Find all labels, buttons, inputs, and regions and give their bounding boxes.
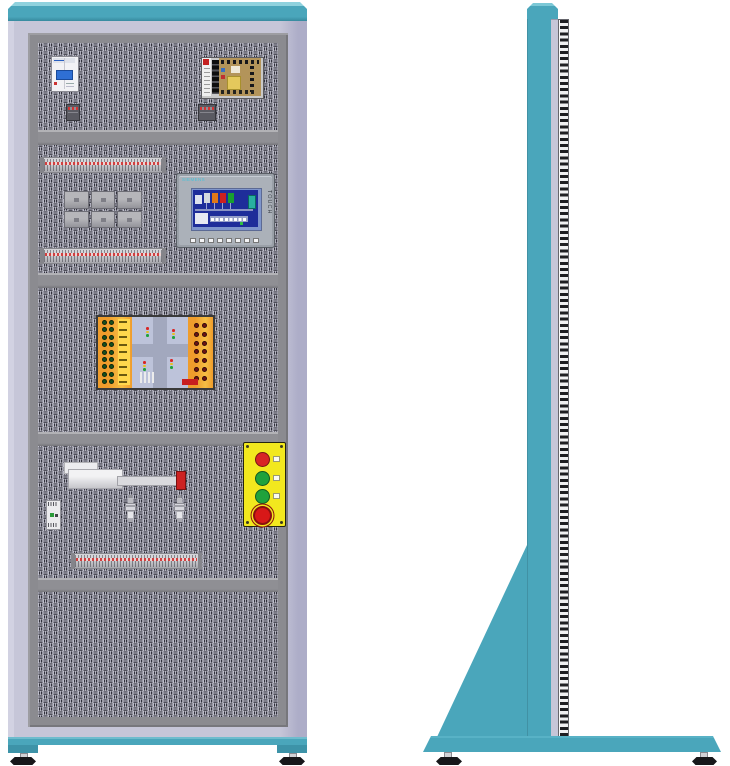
relay-block — [64, 191, 89, 209]
emergency-stop-button — [253, 506, 272, 525]
psu-pcb — [219, 58, 261, 96]
hmi-touch-panel: SIEMENS TOUCH — [176, 173, 275, 248]
traffic-light-lamp — [170, 363, 173, 366]
button-label-tag — [273, 493, 280, 499]
panel-divider — [38, 130, 278, 145]
banana-socket — [202, 376, 207, 381]
banana-socket — [109, 379, 114, 384]
psu-capacitor-column — [250, 66, 254, 92]
illustration-canvas: SIEMENS TOUCH — [0, 0, 730, 766]
banana-socket — [109, 350, 114, 355]
banana-socket — [102, 335, 107, 340]
hmi-brand-text: SIEMENS — [182, 177, 205, 182]
screen-dot-green — [240, 222, 243, 225]
module-chip — [55, 514, 58, 517]
label-dash — [119, 329, 127, 331]
screen-pipe — [195, 209, 253, 211]
banana-socket — [109, 320, 114, 325]
cabinet-plinth — [8, 737, 307, 745]
right-socket-grid — [193, 323, 208, 381]
power-supply — [201, 57, 264, 99]
relay-block — [64, 211, 89, 229]
side-perforation-stripes — [558, 19, 569, 737]
label-dash — [119, 359, 127, 361]
psu-transformer — [227, 76, 241, 90]
traffic-light-lamp — [143, 365, 146, 368]
board-road-horizontal — [132, 344, 188, 357]
screen-indicator-bar — [228, 193, 234, 203]
label-dash — [119, 344, 127, 346]
breaker-text-dash — [66, 83, 74, 84]
hmi-function-key — [199, 238, 205, 243]
relay-block — [91, 211, 116, 229]
traffic-light — [143, 361, 146, 371]
label-dash — [119, 321, 127, 323]
banana-socket — [202, 367, 207, 372]
screen-tank — [248, 195, 256, 209]
label-dash — [119, 336, 127, 338]
side-base-plate — [423, 736, 721, 752]
psu-white-label — [231, 66, 240, 73]
traffic-light — [170, 359, 173, 369]
hmi-function-key — [217, 238, 223, 243]
traffic-light-lamp — [172, 336, 175, 339]
cabinet-top-cap — [8, 2, 307, 21]
breaker-text-dash — [66, 86, 74, 87]
banana-socket — [102, 379, 107, 384]
hmi-side-text: TOUCH — [266, 190, 272, 214]
side-panel-edge — [551, 19, 558, 738]
hmi-function-key — [244, 238, 250, 243]
leveling-foot — [10, 757, 36, 765]
banana-socket — [102, 364, 107, 369]
sensor — [125, 495, 136, 522]
banana-socket — [109, 335, 114, 340]
leveling-foot — [692, 757, 717, 765]
cabinet-side-view — [400, 0, 730, 766]
relay-group — [64, 191, 142, 228]
label-dash — [119, 381, 127, 383]
traffic-light — [172, 329, 175, 339]
banana-socket — [194, 341, 199, 346]
relay-block — [91, 191, 116, 209]
banana-socket — [202, 349, 207, 354]
traffic-trainer-board — [96, 315, 215, 390]
banana-socket — [202, 341, 207, 346]
panel-divider — [38, 578, 278, 592]
traffic-light-lamp — [170, 359, 173, 362]
module-led — [50, 513, 54, 517]
conveyor-cells — [211, 218, 247, 221]
traffic-light-lamp — [146, 331, 149, 334]
terminal-connector-block — [66, 104, 80, 121]
traffic-light-lamp — [146, 334, 149, 337]
button-label-tag — [273, 475, 280, 481]
push-button — [255, 489, 270, 504]
screen-indicator-bar — [204, 193, 210, 203]
hmi-function-key — [190, 238, 196, 243]
screen-indicator-bar — [220, 193, 226, 203]
banana-socket — [194, 332, 199, 337]
traffic-light-lamp — [170, 366, 173, 369]
terminal-rail — [40, 248, 166, 264]
traffic-light-lamp — [172, 329, 175, 332]
banana-socket — [194, 349, 199, 354]
left-socket-grid — [101, 320, 115, 384]
traffic-light-lamp — [172, 333, 175, 336]
banana-socket — [194, 367, 199, 372]
relay-module — [46, 500, 61, 530]
leveling-foot — [436, 757, 462, 765]
banana-socket — [194, 323, 199, 328]
sensor — [174, 495, 185, 522]
hmi-screen — [193, 190, 258, 227]
board-red-label — [182, 379, 198, 385]
psu-terminal-column — [212, 60, 219, 94]
push-button — [255, 452, 270, 467]
banana-socket — [109, 372, 114, 377]
linear-actuator-body — [68, 469, 123, 489]
banana-socket — [202, 332, 207, 337]
plinth-block — [8, 745, 38, 753]
screen-indicator-bar — [212, 193, 218, 203]
terminal-rail — [40, 157, 166, 173]
breaker-flag — [54, 82, 57, 85]
relay-block — [117, 191, 142, 209]
traffic-light — [146, 327, 149, 337]
button-label-tag — [273, 456, 280, 462]
psu-label-dashes — [204, 68, 210, 94]
banana-socket — [202, 323, 207, 328]
relay-block — [117, 211, 142, 229]
psu-component-blue — [221, 68, 225, 72]
traffic-light-lamp — [146, 327, 149, 330]
screen-dialog-box — [195, 195, 202, 204]
hmi-function-key — [208, 238, 214, 243]
banana-socket — [109, 342, 114, 347]
actuator-end-stopper — [176, 471, 186, 490]
banana-socket — [109, 364, 114, 369]
plinth-block — [277, 745, 307, 753]
screen-keypad — [195, 213, 208, 224]
breaker-toggle — [56, 70, 73, 80]
psu-bottom-row — [221, 90, 255, 94]
panel-divider — [38, 432, 278, 446]
board-label-strip — [118, 319, 130, 385]
terminal-rail — [71, 553, 202, 569]
banana-socket — [102, 320, 107, 325]
actuator-rod — [117, 476, 179, 486]
hmi-function-keys — [190, 238, 261, 243]
banana-socket — [194, 358, 199, 363]
pushbutton-station — [243, 442, 286, 527]
circuit-breaker — [51, 56, 79, 92]
panel-divider — [38, 273, 278, 288]
banana-socket — [102, 350, 107, 355]
label-dash — [119, 351, 127, 353]
label-dash — [119, 366, 127, 368]
banana-socket — [109, 357, 114, 362]
psu-capacitor-row — [221, 60, 259, 64]
banana-socket — [102, 327, 107, 332]
hmi-function-key — [235, 238, 241, 243]
hmi-function-key — [226, 238, 232, 243]
push-button — [255, 471, 270, 486]
banana-socket — [102, 342, 107, 347]
hmi-function-key — [253, 238, 259, 243]
traffic-light-lamp — [143, 361, 146, 364]
banana-socket — [202, 358, 207, 363]
breaker-blue-line — [54, 60, 64, 61]
traffic-light-lamp — [143, 368, 146, 371]
side-column — [527, 19, 552, 737]
banana-socket — [102, 372, 107, 377]
banana-socket — [102, 357, 107, 362]
board-crosswalk — [140, 372, 154, 383]
terminal-connector-block — [198, 104, 216, 121]
leveling-foot — [279, 757, 305, 765]
label-dash — [119, 374, 127, 376]
cabinet-front-view: SIEMENS TOUCH — [0, 0, 320, 766]
psu-brand-mark — [203, 59, 209, 65]
banana-socket — [109, 327, 114, 332]
side-support-gusset — [437, 545, 527, 737]
side-top-cap — [527, 3, 558, 20]
psu-component-red — [221, 75, 225, 79]
